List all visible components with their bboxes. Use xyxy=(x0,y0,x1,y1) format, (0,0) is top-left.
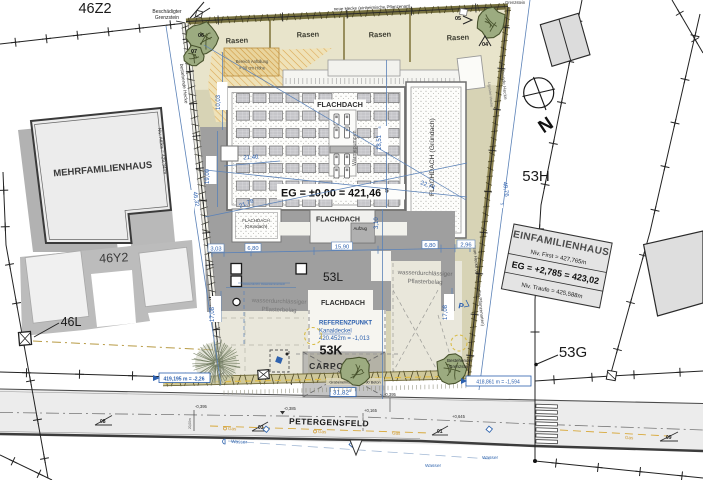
svg-text:04: 04 xyxy=(482,42,489,48)
svg-text:46Z2: 46Z2 xyxy=(78,1,111,17)
svg-text:53H: 53H xyxy=(522,168,550,185)
svg-text:08: 08 xyxy=(100,419,106,425)
svg-text:05: 05 xyxy=(455,16,461,22)
svg-text:Gas: Gas xyxy=(392,431,401,436)
svg-text:REFERENZPUNKT: REFERENZPUNKT xyxy=(319,321,372,327)
svg-text:+0,645: +0,645 xyxy=(452,414,466,419)
svg-text:53G: 53G xyxy=(559,344,587,361)
svg-text:wasserdurchl. Rasenkammerstein: wasserdurchl. Rasenkammerstein xyxy=(243,282,286,286)
svg-text:46L: 46L xyxy=(61,315,82,329)
svg-text:01: 01 xyxy=(437,429,443,435)
svg-text:-0,395: -0,395 xyxy=(384,392,397,397)
svg-text:Rasen: Rasen xyxy=(297,30,320,40)
svg-text:21,40: 21,40 xyxy=(243,154,259,161)
svg-text:07: 07 xyxy=(191,49,197,55)
svg-text:Bereich Anfüllung: Bereich Anfüllung xyxy=(236,59,269,64)
svg-text:Wasser: Wasser xyxy=(231,439,248,446)
svg-text:Rasen: Rasen xyxy=(226,36,249,46)
svg-text:53L: 53L xyxy=(323,270,343,284)
svg-text:Wasser: Wasser xyxy=(482,455,498,461)
svg-text:53K: 53K xyxy=(320,344,343,358)
svg-text:+0,165: +0,165 xyxy=(364,408,378,413)
svg-text:20,00m: 20,00m xyxy=(188,418,192,429)
svg-text:Grenzstein: Grenzstein xyxy=(449,364,471,369)
svg-text:2,96: 2,96 xyxy=(460,243,471,249)
svg-text:06: 06 xyxy=(198,33,204,39)
svg-text:FLACHDACH: FLACHDACH xyxy=(317,100,363,109)
svg-text:17,08: 17,08 xyxy=(210,306,216,322)
svg-text:Gas: Gas xyxy=(318,429,327,434)
svg-text:03: 03 xyxy=(258,425,264,431)
svg-text:15,90: 15,90 xyxy=(335,245,350,251)
svg-text:-0,385: -0,385 xyxy=(284,406,297,411)
svg-text:Grenzstein: Grenzstein xyxy=(155,15,179,21)
svg-text:09: 09 xyxy=(666,435,672,441)
svg-text:FLACHDACH: FLACHDACH xyxy=(316,217,360,224)
svg-text:Rasen: Rasen xyxy=(369,30,392,40)
svg-text:Gas: Gas xyxy=(625,435,634,440)
svg-text:Pflasterbelag: Pflasterbelag xyxy=(261,307,296,314)
svg-text:-0,395: -0,395 xyxy=(195,404,208,409)
svg-text:10,03: 10,03 xyxy=(216,94,222,110)
svg-text:Grenzstein: Grenzstein xyxy=(505,0,526,5)
svg-text:Gas: Gas xyxy=(228,426,237,431)
svg-text:Aufzug: Aufzug xyxy=(354,226,368,231)
svg-text:6,80: 6,80 xyxy=(424,243,435,249)
svg-text:17,08: 17,08 xyxy=(443,304,449,320)
svg-text:420.452m = -1,013: 420.452m = -1,013 xyxy=(319,336,370,342)
svg-text:FLACHDACH: FLACHDACH xyxy=(242,218,270,223)
svg-text:3,10: 3,10 xyxy=(374,217,380,229)
svg-text:418,861 m = -1,594: 418,861 m = -1,594 xyxy=(476,380,520,386)
svg-text:46Y2: 46Y2 xyxy=(99,250,129,266)
svg-text:419,195 m = -2,26: 419,195 m = -2,26 xyxy=(163,377,204,383)
svg-text:Rasen: Rasen xyxy=(447,33,470,43)
svg-text:EG = ±0,00 = 421,46: EG = ±0,00 = 421,46 xyxy=(281,188,381,200)
svg-text:3,03: 3,03 xyxy=(210,247,221,253)
svg-text:Wasser: Wasser xyxy=(425,463,441,469)
svg-text:FLACHDACH: FLACHDACH xyxy=(321,300,365,307)
svg-text:6,80: 6,80 xyxy=(247,246,258,252)
svg-text:(Gründach): (Gründach) xyxy=(245,224,268,229)
svg-text:Kanaldeckel: Kanaldeckel xyxy=(319,329,352,335)
svg-text:Bestehender: Bestehender xyxy=(447,358,473,363)
svg-text:Pflasterbelag: Pflasterbelag xyxy=(407,279,442,286)
